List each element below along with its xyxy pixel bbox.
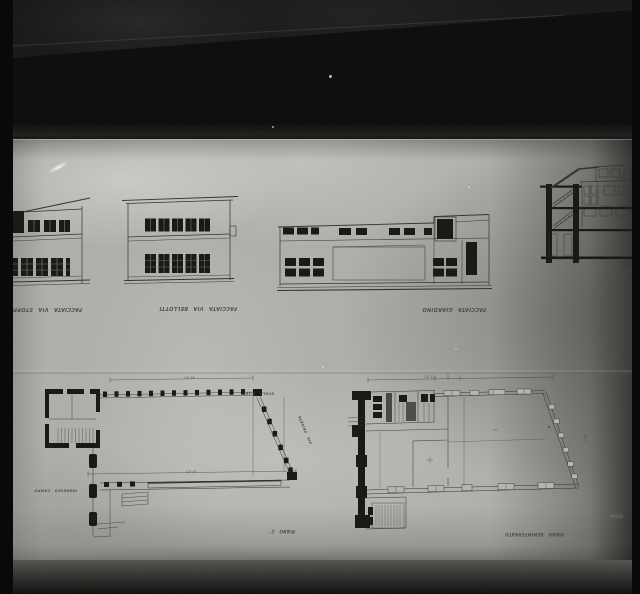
note-between-plans: SCALA 1:100: [246, 391, 274, 395]
film-edge-left: [0, 0, 13, 594]
section-drawing: [540, 165, 636, 266]
film-edge-right: [632, 0, 640, 594]
film-stamp: MOD.: [611, 516, 625, 521]
caption-plan-right: PIANO SEMINTERRATO: [516, 532, 564, 536]
dust-speck: [468, 186, 470, 188]
caption-plan-left-note: INGRESSO CAMPO: [45, 488, 77, 492]
caption-elevation-left: FACCIATA VIA STOPPANI: [16, 306, 82, 311]
caption-elevation-middle: FACCIATA VIA BELLOTTI: [169, 305, 237, 310]
plan-left: [45, 376, 297, 538]
plan-right: [348, 374, 579, 529]
dust-speck: [322, 366, 324, 368]
dust-speck: [329, 75, 332, 78]
dust-speck: [455, 348, 457, 350]
dim-plan-right-top: 17.50: [424, 374, 435, 378]
elevation-right: [277, 215, 492, 291]
photograph: FACCIATA VIA STOPPANI FACCIATA VIA BELLO…: [0, 0, 640, 594]
dust-speck: [272, 126, 274, 128]
dim-plan-left-top: 44.90: [184, 375, 195, 379]
table-shadow-bottom: [0, 560, 640, 594]
caption-elevation-right: FACCIATA GIARDINO: [417, 306, 491, 311]
drawing-linework: [0, 0, 640, 594]
caption-plan-left: PIANO 1°: [263, 529, 301, 533]
elevation-left: [13, 198, 90, 286]
dim-plan-left-mid: 14.45: [186, 469, 197, 473]
elevation-middle: [122, 197, 238, 284]
